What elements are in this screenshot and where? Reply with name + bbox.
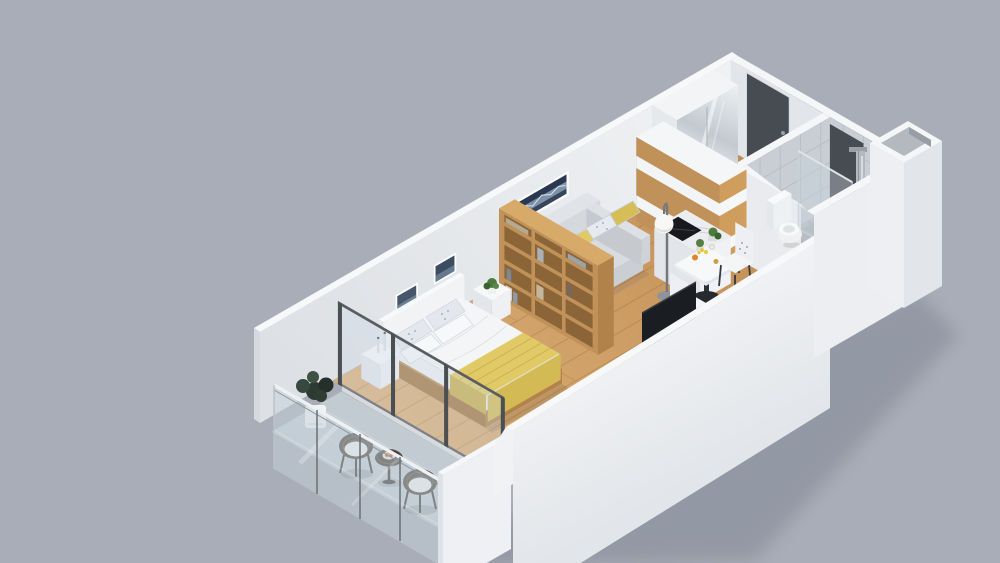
parapet-cap (438, 472, 443, 563)
shaft-left-face (870, 143, 904, 308)
ventilation-shaft (870, 121, 942, 308)
apartment-isometric-svg (0, 0, 1000, 563)
shaft-front-face (904, 141, 942, 308)
front-door-handle (781, 131, 785, 135)
bookshelf-end (598, 256, 614, 355)
floor-plan-render (0, 0, 1000, 563)
back-wall-end-cap (254, 328, 260, 423)
